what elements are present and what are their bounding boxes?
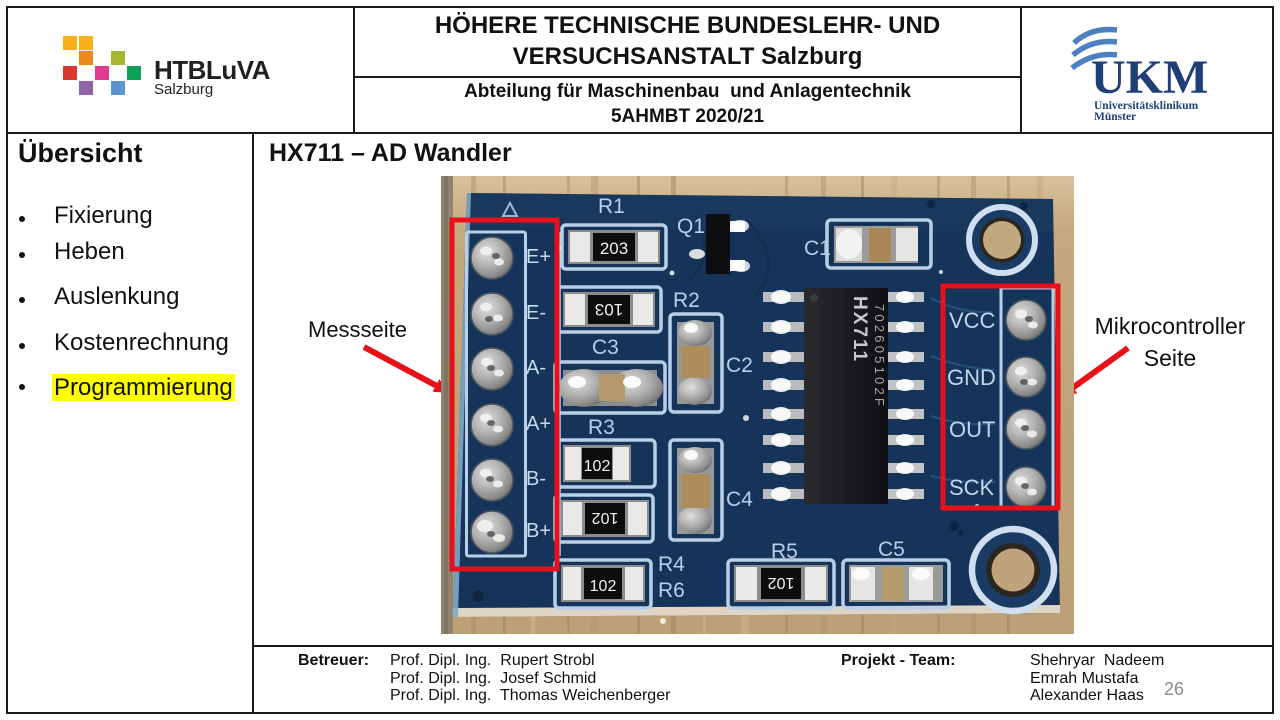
svg-text:R3: R3: [588, 416, 615, 439]
svg-text:R5: R5: [771, 540, 798, 563]
svg-text:GND: GND: [947, 365, 996, 390]
svg-text:702605102F: 702605102F: [872, 304, 887, 409]
svg-text:R1: R1: [598, 195, 625, 218]
svg-text:C1: C1: [804, 237, 831, 260]
svg-text:C2: C2: [726, 354, 753, 377]
svg-text:R2: R2: [673, 289, 700, 312]
svg-text:102: 102: [584, 458, 611, 475]
svg-text:R4: R4: [658, 553, 685, 576]
svg-text:E+: E+: [526, 246, 551, 268]
svg-text:B-: B-: [526, 468, 546, 490]
svg-text:B+: B+: [526, 520, 551, 542]
svg-text:103: 103: [595, 300, 623, 319]
svg-text:Q1: Q1: [677, 215, 705, 238]
svg-text:A+: A+: [526, 413, 551, 435]
svg-text:203: 203: [600, 239, 628, 258]
svg-text:Münster: Münster: [1094, 111, 1136, 123]
svg-text:C5: C5: [878, 538, 905, 561]
svg-text:VCC: VCC: [949, 308, 996, 333]
svg-text:A-: A-: [526, 357, 546, 379]
svg-text:102: 102: [590, 578, 617, 595]
svg-text:102: 102: [768, 574, 795, 591]
svg-text:R6: R6: [658, 579, 685, 602]
svg-text:SCK: SCK: [949, 475, 995, 500]
svg-text:UKM: UKM: [1091, 51, 1208, 104]
svg-text:102: 102: [592, 509, 619, 526]
svg-text:E-: E-: [526, 302, 546, 324]
svg-text:HX711: HX711: [849, 296, 870, 363]
svg-text:C3: C3: [592, 336, 619, 359]
svg-text:C4: C4: [726, 488, 753, 511]
svg-text:OUT: OUT: [949, 417, 995, 442]
